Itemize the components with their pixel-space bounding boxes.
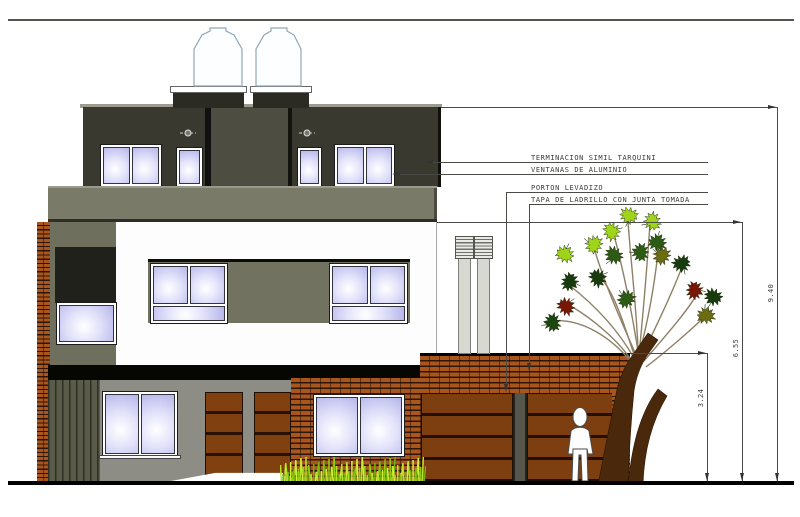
- callout-leader-brick-coping-drop: [529, 204, 530, 365]
- window-pane: [179, 150, 200, 184]
- leader-arrow: [425, 160, 433, 164]
- callout-windows: VENTANAS DE ALUMINIO: [531, 166, 627, 174]
- tank-platform-right: [250, 86, 312, 93]
- chimney-cap: [455, 236, 474, 259]
- dim-value-total: 9.40: [767, 275, 777, 311]
- dim-arrow: [733, 220, 741, 224]
- top-border-line: [8, 19, 794, 21]
- window-pane: [370, 266, 406, 304]
- callout-leader-garage-door: [506, 192, 708, 193]
- chimney-pipe: [477, 258, 490, 354]
- window-pane: [141, 394, 175, 454]
- water-tank-icon: [256, 28, 301, 86]
- window-pane: [300, 150, 319, 184]
- window-pane: [105, 394, 139, 454]
- tank-pedestal-right: [253, 93, 309, 108]
- slab-band: [48, 188, 437, 219]
- window-pane: [337, 147, 364, 184]
- dim-line-total: [777, 107, 778, 483]
- elevation-drawing: TERMINACION SIMIL TARQUINI VENTANAS DE A…: [0, 0, 800, 517]
- window-pane: [332, 266, 368, 304]
- dim-arrow: [740, 473, 744, 481]
- ground-picture-window: [313, 394, 405, 457]
- window-transom-pane: [332, 306, 405, 321]
- dim-line-mid: [742, 222, 743, 483]
- tree-drawing: [512, 193, 752, 485]
- ground-window: [102, 391, 178, 457]
- window-sill: [99, 455, 181, 459]
- third-floor-window-double-right: [334, 144, 395, 187]
- entry-door-left: [205, 392, 243, 476]
- window-pane: [59, 305, 114, 342]
- garage-door-left: [421, 393, 513, 481]
- tank-platform-left: [170, 86, 247, 93]
- ground-siding-wall: [48, 380, 102, 483]
- ground-line: [8, 481, 794, 485]
- third-floor-window-double-left: [100, 144, 162, 187]
- vent-mark-icon: [180, 128, 196, 138]
- window-pane: [153, 266, 188, 304]
- window-transom-pane: [153, 306, 225, 321]
- callout-leader-finish: [429, 162, 708, 163]
- window-pane: [132, 147, 159, 184]
- callout-finish: TERMINACION SIMIL TARQUINI: [531, 154, 656, 162]
- vent-mark-icon: [299, 128, 315, 138]
- window-upper-row: [332, 266, 405, 304]
- window-pane: [316, 397, 358, 454]
- stair-tower: [211, 107, 288, 187]
- dim-extension-total: [441, 107, 777, 108]
- tree-trunk-fork: [628, 389, 667, 485]
- dim-arrow: [775, 473, 779, 481]
- chimney-pipe: [458, 258, 471, 354]
- leader-arrow: [392, 172, 400, 176]
- water-tanks: [193, 27, 303, 87]
- third-floor-window-single-left: [176, 147, 203, 187]
- callout-leader-windows: [396, 174, 708, 175]
- third-floor-window-single-right: [297, 147, 322, 187]
- strip-window-right: [329, 263, 408, 324]
- grass-drawing: [280, 450, 426, 484]
- dim-arrow: [705, 473, 709, 481]
- window-pane: [366, 147, 393, 184]
- strip-window-left: [150, 263, 228, 324]
- dim-extension-garage: [630, 353, 707, 354]
- callout-leader-brick-coping: [529, 204, 708, 205]
- leader-arrow: [527, 363, 531, 371]
- third-floor-right-edge: [438, 107, 441, 187]
- dim-line-garage: [707, 353, 708, 483]
- window-upper-row: [153, 266, 225, 304]
- dim-arrow: [768, 105, 776, 109]
- dim-value-garage: 3.24: [697, 380, 707, 416]
- window-pane: [360, 397, 402, 454]
- callout-garage-door: PORTON LEVADIZO: [531, 184, 603, 192]
- water-tank-icon: [194, 28, 242, 86]
- callout-brick-coping: TAPA DE LADRILLO CON JUNTA TOMADA: [531, 196, 690, 204]
- chimney-cap: [474, 236, 493, 259]
- window-pane: [103, 147, 130, 184]
- dim-extension-mid: [437, 222, 742, 223]
- dim-arrow: [698, 351, 706, 355]
- left-column-recess: [55, 247, 116, 303]
- leader-arrow: [504, 384, 508, 392]
- tank-pedestal-left: [173, 93, 244, 108]
- left-column-window: [56, 302, 117, 345]
- dim-value-mid: 6.55: [732, 330, 742, 366]
- slab-right-edge: [434, 188, 437, 219]
- window-pane: [190, 266, 225, 304]
